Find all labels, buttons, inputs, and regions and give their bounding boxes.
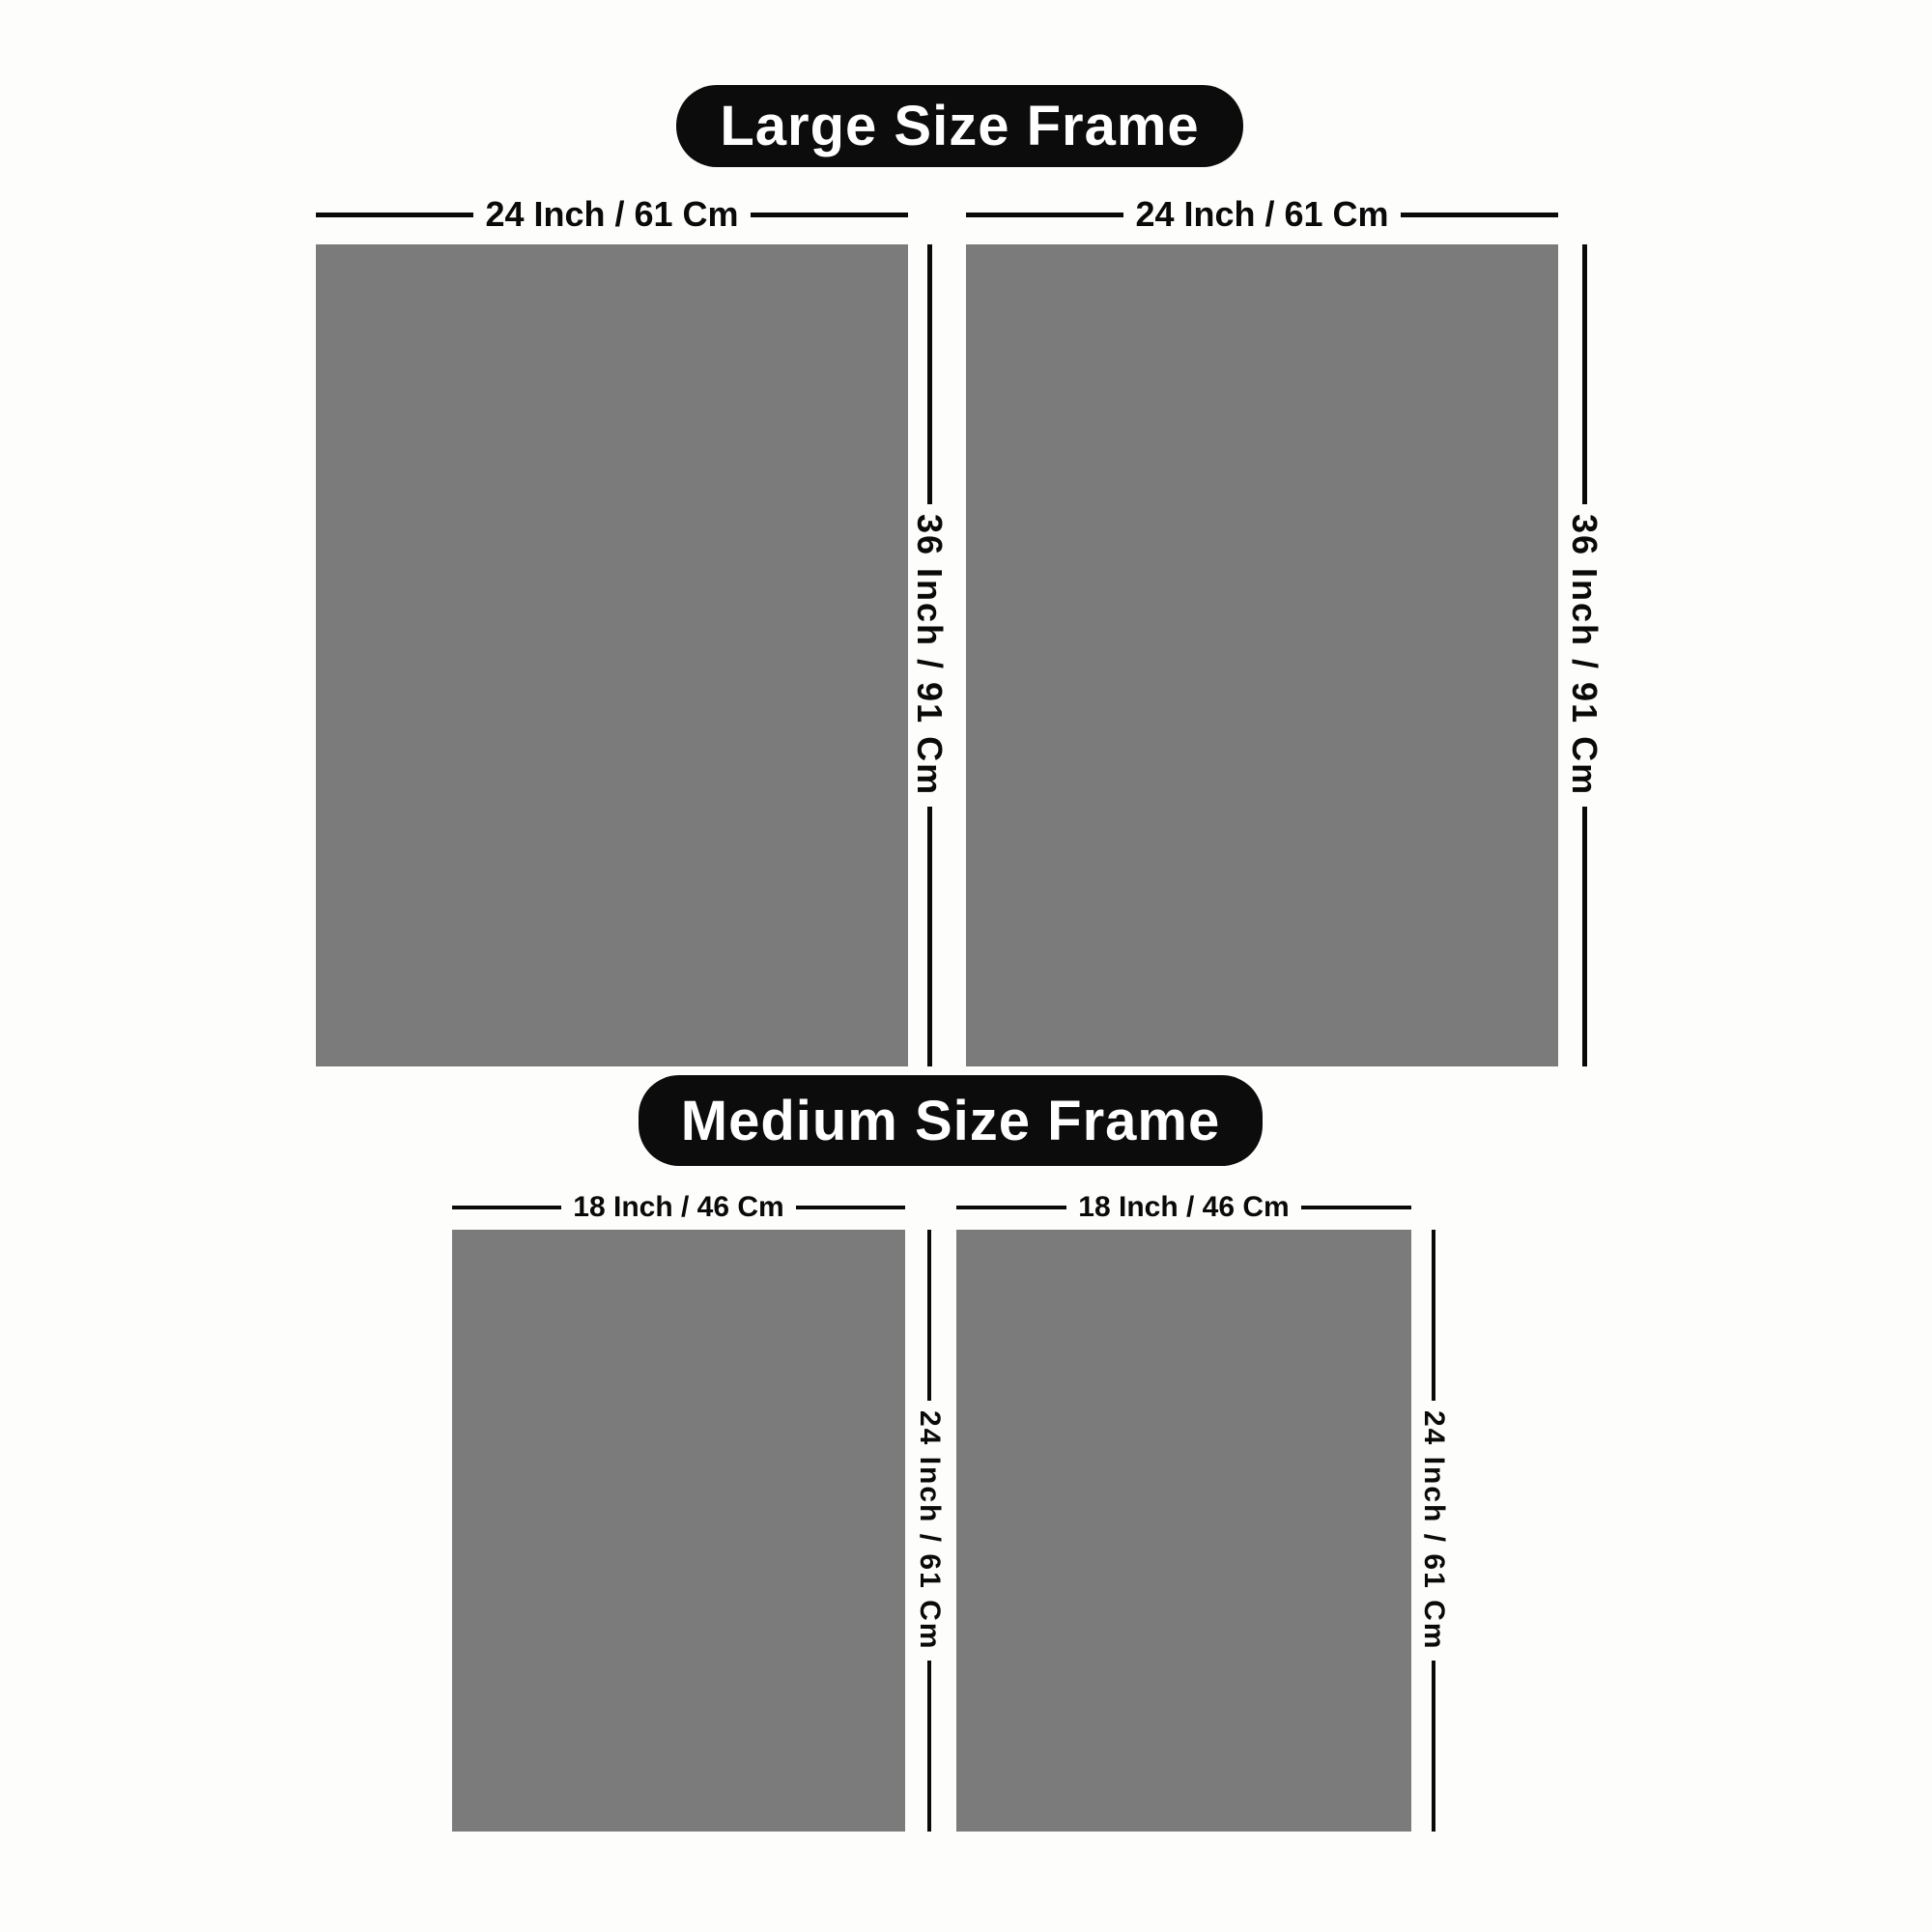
large-frame-2-height-dimension: 36 Inch / 91 Cm [1565, 244, 1604, 1066]
dimension-line [796, 1206, 905, 1209]
large-frame-2-width-dimension: 24 Inch / 61 Cm [966, 193, 1558, 236]
dimension-line [1301, 1206, 1411, 1209]
dimension-line [927, 1230, 931, 1401]
dimension-line [452, 1206, 561, 1209]
medium-frame-2-preview-rect [956, 1230, 1411, 1832]
large-section-title: Large Size Frame [720, 94, 1199, 158]
large-frame-1-height-label: 36 Inch / 91 Cm [909, 514, 950, 796]
large-frame-2-preview-rect [966, 244, 1558, 1066]
medium-frame-2-height-dimension: 24 Inch / 61 Cm [1414, 1230, 1453, 1832]
medium-section-title-pill: Medium Size Frame [639, 1075, 1263, 1166]
large-frame-1-width-label: 24 Inch / 61 Cm [485, 194, 738, 235]
dimension-line [1582, 807, 1587, 1066]
medium-frame-1-preview-rect [452, 1230, 905, 1832]
dimension-line [927, 244, 932, 504]
medium-frame-2-width-label: 18 Inch / 46 Cm [1078, 1191, 1289, 1224]
medium-frame-1-width-dimension: 18 Inch / 46 Cm [452, 1186, 905, 1229]
dimension-line [316, 213, 473, 217]
dimension-line [751, 213, 908, 217]
dimension-line [966, 213, 1123, 217]
large-frame-1-preview-rect [316, 244, 908, 1066]
large-section-title-pill: Large Size Frame [676, 85, 1243, 167]
large-frame-2-width-label: 24 Inch / 61 Cm [1135, 194, 1388, 235]
large-frame-1-width-dimension: 24 Inch / 61 Cm [316, 193, 908, 236]
large-frame-1-height-dimension: 36 Inch / 91 Cm [910, 244, 949, 1066]
large-frame-2-height-label: 36 Inch / 91 Cm [1564, 514, 1605, 796]
dimension-line [1432, 1230, 1435, 1401]
dimension-line [927, 1661, 931, 1832]
dimension-line [1432, 1661, 1435, 1832]
dimension-line [1401, 213, 1558, 217]
dimension-line [956, 1206, 1066, 1209]
medium-frame-2-width-dimension: 18 Inch / 46 Cm [956, 1186, 1411, 1229]
medium-frame-1-height-dimension: 24 Inch / 61 Cm [910, 1230, 949, 1832]
medium-frame-2-height-label: 24 Inch / 61 Cm [1417, 1410, 1450, 1650]
dimension-line [1582, 244, 1587, 504]
dimension-line [927, 807, 932, 1066]
medium-frame-1-width-label: 18 Inch / 46 Cm [573, 1191, 783, 1224]
medium-section-title: Medium Size Frame [681, 1089, 1220, 1153]
medium-frame-1-height-label: 24 Inch / 61 Cm [913, 1410, 946, 1650]
frame-size-guide: Large Size Frame 24 Inch / 61 Cm 36 Inch… [0, 0, 1932, 1932]
